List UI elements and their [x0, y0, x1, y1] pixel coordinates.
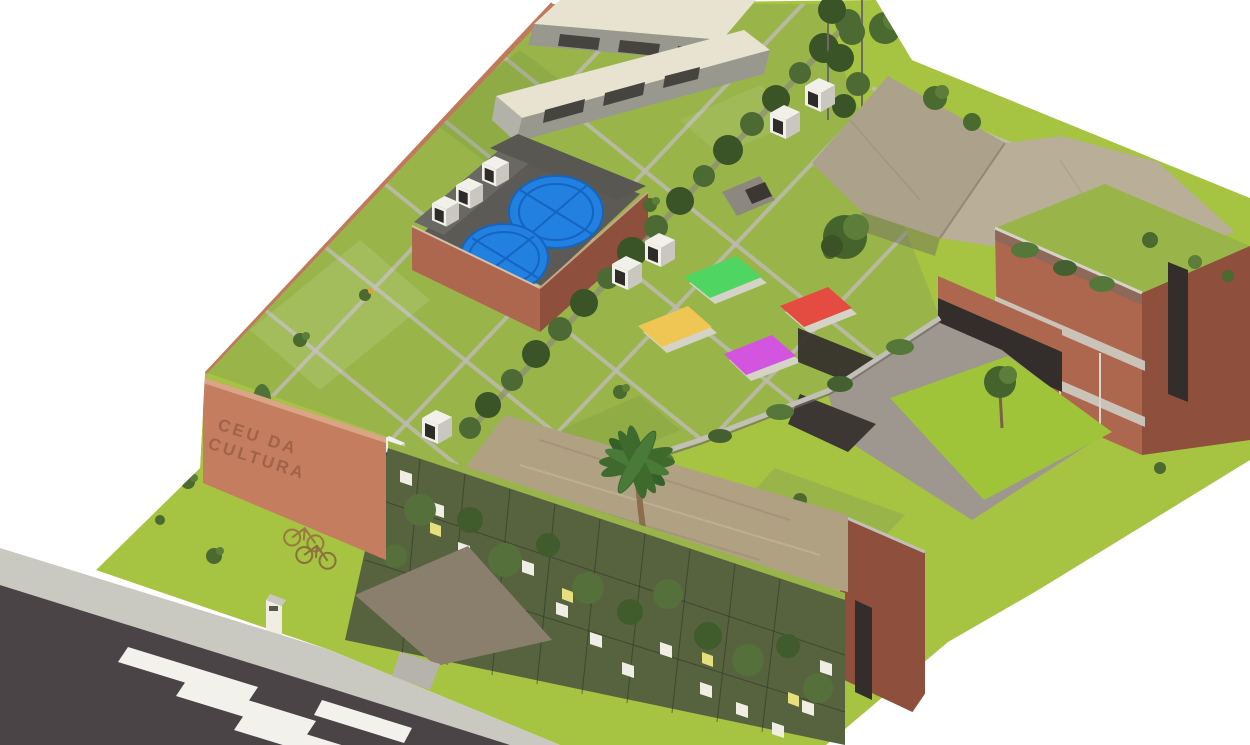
facade-vine [383, 544, 407, 568]
facade-vine [617, 599, 643, 625]
vine-clump [789, 62, 811, 84]
cascading-plant [827, 376, 853, 392]
annex-window-slot [855, 600, 872, 700]
roof-shrub [1142, 232, 1158, 248]
tree [935, 85, 949, 99]
vine-clump [570, 289, 598, 317]
vine-clump [459, 417, 481, 439]
cascading-plant [1053, 260, 1077, 276]
vine-clump [501, 369, 523, 391]
vine-clump [475, 392, 501, 418]
cascading-plant [1089, 276, 1115, 292]
vine-clump [826, 44, 854, 72]
bollard-slot [269, 606, 278, 611]
courtyard-tree [999, 366, 1017, 384]
shrub [368, 288, 374, 294]
facade-vine [404, 494, 436, 526]
shrub [695, 167, 705, 177]
vine-clump [548, 317, 572, 341]
tree [963, 113, 981, 131]
tree [821, 235, 843, 257]
facade-vine [732, 644, 764, 676]
vine-clump [832, 94, 856, 118]
facade-vine [694, 622, 722, 650]
vine-clump [839, 19, 865, 45]
vine-clump [740, 112, 764, 136]
shrub [302, 332, 310, 340]
facade-vine [488, 543, 522, 577]
window-slot [1168, 262, 1188, 402]
vine-clump [846, 72, 870, 96]
tree [843, 214, 869, 240]
architectural-render: CEU DA CULTURA [0, 0, 1250, 745]
vine-clump [666, 187, 694, 215]
roof-shrub [1222, 270, 1234, 282]
cascading-plant [708, 429, 732, 443]
facade-vine [776, 634, 800, 658]
render-canvas: CEU DA CULTURA [0, 0, 1250, 745]
facade-vine [572, 572, 604, 604]
roof-shrub [1188, 255, 1202, 269]
shrub [622, 384, 630, 392]
vine-clump [522, 340, 550, 368]
facade-vine [457, 507, 483, 533]
cascading-plant [1011, 242, 1039, 258]
lawn-shrub [216, 547, 224, 555]
cascading-plant [766, 404, 794, 420]
shrub [652, 197, 660, 205]
facade-vine [653, 579, 683, 609]
vine-clump [713, 135, 743, 165]
lawn-shrub [155, 515, 165, 525]
lawn-shrub [1154, 462, 1166, 474]
facade-vine [536, 533, 560, 557]
vine-clump [693, 165, 715, 187]
facade-vine [803, 673, 833, 703]
cascading-plant [886, 339, 914, 355]
